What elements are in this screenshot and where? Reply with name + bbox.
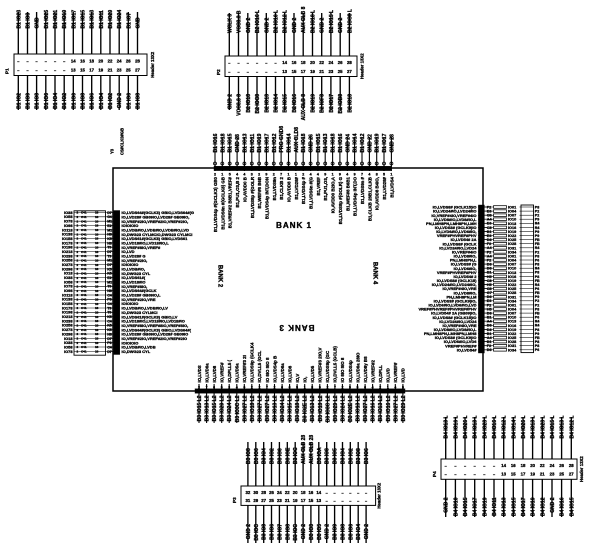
svg-text:B3 IO8: B3 IO8 xyxy=(285,524,291,540)
svg-text:–: – xyxy=(464,464,466,468)
svg-text:P3: P3 xyxy=(232,497,237,503)
svg-text:B1,LVDS8p #(GOLR: B1,LVDS8p #(GOLR xyxy=(250,176,255,218)
svg-text:13: 13 xyxy=(501,472,506,477)
svg-text:IO,LVD8: IO,LVD8 xyxy=(212,365,217,382)
svg-text:B4 IO28 L: B4 IO28 L xyxy=(540,415,546,438)
svg-text:B1 IO13: B1 IO13 xyxy=(242,133,248,152)
svg-text:14: 14 xyxy=(71,59,76,64)
svg-text:C41: C41 xyxy=(81,215,87,219)
svg-text:28: 28 xyxy=(261,490,266,495)
svg-text:B4 IO16 L: B4 IO16 L xyxy=(453,415,459,438)
svg-text:B3 IO13 L2: B3 IO13 L2 xyxy=(273,395,279,421)
svg-text:B4 IO16 L: B4 IO16 L xyxy=(492,415,498,438)
svg-text:–: – xyxy=(54,60,56,64)
svg-text:B4 IO19: B4 IO19 xyxy=(482,497,488,516)
svg-text:B1 IO11: B1 IO11 xyxy=(99,10,105,29)
svg-text:B4 IO28 L: B4 IO28 L xyxy=(482,415,488,438)
svg-text:B1 IO19: B1 IO19 xyxy=(62,10,68,29)
svg-text:D7: D7 xyxy=(107,350,112,354)
svg-text:B3 IO13 L2: B3 IO13 L2 xyxy=(310,395,316,421)
svg-text:Header 13X2: Header 13X2 xyxy=(150,51,155,77)
svg-text:C41: C41 xyxy=(81,345,87,349)
svg-text:–: – xyxy=(256,61,258,65)
svg-text:BANK 4: BANK 4 xyxy=(372,262,378,285)
svg-text:21: 21 xyxy=(108,68,113,73)
svg-text:B1,CLKB 28B1,CLKB: B1,CLKB 28B1,CLKB xyxy=(367,177,372,221)
svg-text:GND 2: GND 2 xyxy=(364,524,370,540)
svg-text:2: 2 xyxy=(274,385,276,389)
svg-text:B4 IO14 L: B4 IO14 L xyxy=(511,415,517,438)
svg-text:BANK 1: BANK 1 xyxy=(276,221,312,230)
svg-text:C41: C41 xyxy=(81,332,87,336)
svg-text:16: 16 xyxy=(511,463,516,468)
svg-text:2: 2 xyxy=(258,385,260,389)
svg-text:9: 9 xyxy=(319,385,321,389)
svg-text:B3 IO27 L2: B3 IO27 L2 xyxy=(265,395,271,421)
svg-text:–: – xyxy=(334,491,336,495)
svg-text:17: 17 xyxy=(301,69,306,74)
svg-text:5: 5 xyxy=(402,385,404,389)
svg-text:B3 IO6: B3 IO6 xyxy=(348,524,354,540)
svg-text:B1,PU1,O3,: B1,PU1,O3, xyxy=(323,177,328,201)
svg-text:GND 2: GND 2 xyxy=(227,94,233,110)
svg-text:9: 9 xyxy=(354,173,356,177)
svg-text:C41: C41 xyxy=(81,237,87,241)
svg-text:B4 IO12 L: B4 IO12 L xyxy=(569,415,575,438)
svg-text:B1 IO15: B1 IO15 xyxy=(81,10,87,29)
svg-text:14: 14 xyxy=(282,60,287,65)
svg-text:B1 IO19: B1 IO19 xyxy=(375,133,381,152)
svg-text:B4 IO17: B4 IO17 xyxy=(473,497,479,516)
svg-text:B1,LVD28#: B1,LVD28# xyxy=(294,176,299,199)
svg-text:2: 2 xyxy=(379,385,381,389)
svg-text:B3 IO24 L2: B3 IO24 L2 xyxy=(227,395,233,421)
svg-text:B1 IO14: B1 IO14 xyxy=(353,133,359,152)
svg-text:Header 13X2: Header 13X2 xyxy=(360,53,365,79)
svg-text:B3 IO27 L2: B3 IO27 L2 xyxy=(363,395,369,421)
svg-text:GND 2: GND 2 xyxy=(117,93,123,109)
svg-text:2: 2 xyxy=(251,385,253,389)
svg-text:E2: E2 xyxy=(107,224,111,228)
svg-text:C41: C41 xyxy=(81,258,87,262)
svg-text:GND 24: GND 24 xyxy=(345,134,351,153)
svg-text:B1 IO6: B1 IO6 xyxy=(44,93,50,109)
svg-text:14: 14 xyxy=(501,463,506,468)
svg-text:AUX CLB 28: AUX CLB 28 xyxy=(301,435,307,464)
svg-text:25: 25 xyxy=(269,498,274,503)
svg-text:B1 IO11: B1 IO11 xyxy=(250,134,256,153)
svg-text:IO,LVD5a: IO,LVD5a xyxy=(235,363,240,383)
svg-text:B1,CLKB 2: B1,CLKB 2 xyxy=(279,176,284,199)
svg-text:B1 IO19: B1 IO19 xyxy=(257,133,263,152)
svg-text:–: – xyxy=(274,61,276,65)
svg-text:B1 IO15: B1 IO15 xyxy=(228,133,234,152)
svg-text:1: 1 xyxy=(387,385,389,389)
svg-text:B1,PU1,O3,B 2: B1,PU1,O3,B 2 xyxy=(235,176,240,207)
svg-text:–: – xyxy=(349,499,351,503)
svg-text:25: 25 xyxy=(338,69,343,74)
svg-text:P4: P4 xyxy=(432,471,437,477)
svg-text:IO,AVDD8 B: IO,AVDD8 B xyxy=(287,177,292,202)
svg-text:B3 IO4: B3 IO4 xyxy=(262,448,268,464)
svg-text:22: 22 xyxy=(285,490,290,495)
svg-text:B1 IO0: B1 IO0 xyxy=(26,93,32,109)
svg-text:B1,LVDS4: B1,LVDS4 xyxy=(389,176,394,197)
svg-text:17: 17 xyxy=(89,68,94,73)
svg-text:20: 20 xyxy=(293,490,298,495)
svg-text:AUX CLB 8: AUX CLB 8 xyxy=(301,94,307,121)
svg-text:–: – xyxy=(341,491,343,495)
svg-text:B1 IO18: B1 IO18 xyxy=(220,133,226,152)
svg-text:B3 IO24 L2: B3 IO24 L2 xyxy=(280,395,286,421)
svg-text:B1,LVD28#: B1,LVD28# xyxy=(382,176,387,199)
svg-text:B3 IO13 L2: B3 IO13 L2 xyxy=(205,395,211,421)
svg-text:23: 23 xyxy=(329,69,334,74)
svg-text:B3 IO2: B3 IO2 xyxy=(348,448,354,464)
svg-text:B1 IO13: B1 IO13 xyxy=(90,10,96,29)
svg-text:–: – xyxy=(63,69,65,73)
svg-text:B3 IOA: B3 IOA xyxy=(317,447,323,464)
svg-text:6: 6 xyxy=(281,385,283,389)
svg-text:–: – xyxy=(26,69,28,73)
svg-text:M1: M1 xyxy=(107,259,112,263)
svg-text:9: 9 xyxy=(324,173,326,177)
svg-text:B1 IO3: B1 IO3 xyxy=(26,12,32,28)
svg-text:P6: P6 xyxy=(535,348,539,352)
svg-text:26: 26 xyxy=(269,490,274,495)
svg-text:K5: K5 xyxy=(107,267,112,271)
svg-text:15: 15 xyxy=(511,472,516,477)
svg-text:4: 4 xyxy=(346,173,348,177)
svg-text:21: 21 xyxy=(540,472,545,477)
svg-text:18: 18 xyxy=(301,490,306,495)
svg-text:18: 18 xyxy=(95,311,99,315)
svg-text:B3 IO18 L2: B3 IO18 L2 xyxy=(295,395,301,421)
svg-text:IO,LVD: IO,LVD xyxy=(401,368,406,382)
svg-text:B3 IOC: B3 IOC xyxy=(293,447,299,464)
svg-text:B3 IO8: B3 IO8 xyxy=(341,524,347,540)
svg-text:2: 2 xyxy=(302,173,304,177)
svg-text:B4 IO15 L: B4 IO15 L xyxy=(550,415,556,438)
svg-text:B3 IO6: B3 IO6 xyxy=(254,448,260,464)
svg-text:B1 IO12: B1 IO12 xyxy=(360,133,366,152)
svg-text:B4 IO12 L: B4 IO12 L xyxy=(502,415,508,438)
svg-text:B2 IOF8: B2 IOF8 xyxy=(320,94,326,113)
svg-text:26: 26 xyxy=(126,59,131,64)
svg-text:4: 4 xyxy=(372,385,374,389)
svg-text:B1 IO13: B1 IO13 xyxy=(323,133,329,152)
svg-text:GND 2: GND 2 xyxy=(292,18,298,34)
svg-text:B1 IO8: B1 IO8 xyxy=(81,93,87,109)
svg-text:B4 IO15: B4 IO15 xyxy=(511,497,517,516)
svg-text:VCC3.3 B: VCC3.3 B xyxy=(237,10,243,33)
svg-text:B1 IO16: B1 IO16 xyxy=(213,133,219,152)
svg-text:18: 18 xyxy=(95,267,99,271)
svg-text:GND 2: GND 2 xyxy=(338,18,344,34)
svg-text:B4 IO19: B4 IO19 xyxy=(531,497,537,516)
svg-text:B3 IO3: B3 IO3 xyxy=(309,524,315,540)
svg-text:B4 IO26 L: B4 IO26 L xyxy=(463,415,469,438)
svg-text:18: 18 xyxy=(95,302,99,306)
svg-text:B3 IO16 L2: B3 IO16 L2 xyxy=(386,395,392,421)
svg-text:B4 IO15: B4 IO15 xyxy=(463,497,469,516)
svg-text:20: 20 xyxy=(98,59,103,64)
svg-text:–: – xyxy=(326,499,328,503)
svg-text:18: 18 xyxy=(95,237,99,241)
svg-text:C41: C41 xyxy=(81,350,87,354)
svg-text:4: 4 xyxy=(236,173,238,177)
svg-text:T9: T9 xyxy=(107,311,111,315)
svg-text:13: 13 xyxy=(71,68,76,73)
svg-text:B3 IO5: B3 IO5 xyxy=(333,448,339,464)
svg-text:23: 23 xyxy=(550,472,555,477)
svg-text:4: 4 xyxy=(310,173,312,177)
svg-text:B1 IO16: B1 IO16 xyxy=(338,133,344,152)
svg-text:VCC3.3 8: VCC3.3 8 xyxy=(237,94,243,116)
svg-text:B1 IO2: B1 IO2 xyxy=(62,93,68,109)
svg-text:–: – xyxy=(17,60,19,64)
svg-text:20: 20 xyxy=(310,60,315,65)
svg-text:B3 IO4: B3 IO4 xyxy=(356,524,362,540)
svg-text:18: 18 xyxy=(95,224,99,228)
svg-text:B3 IO9: B3 IO9 xyxy=(333,524,339,540)
svg-text:B1 IO17: B1 IO17 xyxy=(71,10,77,29)
svg-text:B3 IO6: B3 IO6 xyxy=(270,524,276,540)
svg-text:B3 IOE: B3 IOE xyxy=(285,447,291,464)
svg-text:B1,VREF#2 B8B1,VREF#: B1,VREF#2 B8B1,VREF# xyxy=(228,176,233,228)
svg-text:B3 IO8: B3 IO8 xyxy=(262,524,268,540)
svg-text:1: 1 xyxy=(288,173,290,177)
svg-text:–: – xyxy=(357,499,359,503)
svg-text:GND: GND xyxy=(136,17,142,29)
svg-text:C41: C41 xyxy=(81,289,87,293)
svg-text:4: 4 xyxy=(236,385,238,389)
svg-text:B2 IO16 L: B2 IO16 L xyxy=(255,10,261,33)
svg-text:–: – xyxy=(464,473,466,477)
svg-text:–: – xyxy=(228,61,230,65)
svg-text:15: 15 xyxy=(80,68,85,73)
svg-text:–: – xyxy=(493,473,495,477)
svg-text:B3 IO15 L2: B3 IO15 L2 xyxy=(197,395,203,421)
svg-text:B4 IO16: B4 IO16 xyxy=(560,497,566,516)
svg-text:B1 IO17: B1 IO17 xyxy=(382,133,388,152)
svg-text:28: 28 xyxy=(347,60,352,65)
svg-text:B4 IO12: B4 IO12 xyxy=(540,497,546,516)
svg-text:C4: C4 xyxy=(107,345,112,349)
svg-text:IO,AVDD8 B4IO,: IO,AVDD8 B4IO, xyxy=(375,177,380,210)
svg-text:GND 26: GND 26 xyxy=(309,134,315,153)
svg-text:6: 6 xyxy=(289,385,291,389)
svg-text:B4 IO10: B4 IO10 xyxy=(453,497,459,516)
svg-text:GND 28: GND 28 xyxy=(389,134,395,153)
svg-text:28: 28 xyxy=(135,59,140,64)
svg-text:B1 IO8: B1 IO8 xyxy=(136,93,142,109)
svg-text:B2 IOC8: B2 IOC8 xyxy=(255,94,261,114)
svg-text:7: 7 xyxy=(361,173,363,177)
svg-text:AUX CLB 28: AUX CLB 28 xyxy=(309,435,315,464)
svg-text:B1 IO2: B1 IO2 xyxy=(108,93,114,109)
svg-text:B1 IO23: B1 IO23 xyxy=(16,10,22,29)
svg-text:T9: T9 xyxy=(107,246,111,250)
svg-text:B3 IO27 L2: B3 IO27 L2 xyxy=(242,395,248,421)
svg-text:AUX CLB 8: AUX CLB 8 xyxy=(301,6,307,33)
svg-text:–: – xyxy=(265,70,267,74)
svg-text:–: – xyxy=(256,70,258,74)
svg-text:GND 2: GND 2 xyxy=(444,497,450,513)
svg-text:9: 9 xyxy=(339,173,341,177)
svg-text:B1 IO7: B1 IO7 xyxy=(126,12,132,28)
svg-text:B3 IO0: B3 IO0 xyxy=(277,448,283,464)
svg-text:M1: M1 xyxy=(107,280,112,284)
svg-text:IO 8IO 8IO 8: IO 8IO 8IO 8 xyxy=(265,357,270,382)
svg-text:B3 IO29 L2: B3 IO29 L2 xyxy=(333,395,339,421)
svg-text:17: 17 xyxy=(301,498,306,503)
svg-text:–: – xyxy=(54,69,56,73)
svg-text:IO,DPLL: IO,DPLL xyxy=(378,365,383,383)
svg-text:GND 28: GND 28 xyxy=(235,134,241,153)
svg-text:IO,LVD8y B8: IO,LVD8y B8 xyxy=(363,356,368,383)
svg-text:7: 7 xyxy=(334,385,336,389)
svg-text:18: 18 xyxy=(95,289,99,293)
svg-text:–: – xyxy=(357,491,359,495)
svg-text:B3 IO29 L2: B3 IO29 L2 xyxy=(220,395,226,421)
svg-text:3: 3 xyxy=(228,385,230,389)
svg-text:28: 28 xyxy=(569,463,574,468)
svg-text:IO,AVDD0 B: IO,AVDD0 B xyxy=(242,177,247,202)
svg-text:B4 IO17: B4 IO17 xyxy=(521,497,527,516)
svg-text:GND 2: GND 2 xyxy=(264,18,270,34)
svg-text:B2 IO16: B2 IO16 xyxy=(292,94,298,113)
svg-text:18: 18 xyxy=(95,345,99,349)
svg-text:IO,VREF#3 2IO,V: IO,VREF#3 2IO,V xyxy=(318,348,323,383)
svg-text:B1,LVDS4p INT,DON: B1,LVDS4p INT,DON xyxy=(264,177,269,219)
svg-text:B3 IO29 L2: B3 IO29 L2 xyxy=(401,395,407,421)
svg-text:B4 IO18 L: B4 IO18 L xyxy=(473,415,479,438)
svg-text:IO 8IO 8IO 8: IO 8IO 8IO 8 xyxy=(340,357,345,382)
svg-text:BANK 3: BANK 3 xyxy=(279,323,315,332)
svg-text:IO,DVLL5 (GCL: IO,DVLL5 (GCL xyxy=(257,350,262,382)
svg-text:22: 22 xyxy=(319,60,324,65)
svg-text:B3 IO8: B3 IO8 xyxy=(325,448,331,464)
svg-text:7: 7 xyxy=(266,385,268,389)
svg-text:C4: C4 xyxy=(107,302,112,306)
svg-text:IO,LVDS4p B: IO,LVDS4p B xyxy=(272,356,277,383)
svg-text:P2: P2 xyxy=(216,69,221,75)
svg-text:B4 IO26 L: B4 IO26 L xyxy=(521,415,527,438)
svg-text:21: 21 xyxy=(285,498,290,503)
svg-text:–: – xyxy=(237,70,239,74)
svg-text:IO78: IO78 xyxy=(64,349,73,354)
svg-text:18: 18 xyxy=(95,332,99,336)
svg-text:IO,LVD6a: IO,LVD6a xyxy=(280,363,285,383)
svg-text:B1 IO17: B1 IO17 xyxy=(264,133,270,152)
svg-text:14: 14 xyxy=(316,490,321,495)
svg-text:24: 24 xyxy=(117,59,122,64)
svg-text:IO,LVD5: IO,LVD5 xyxy=(310,365,315,382)
svg-text:27: 27 xyxy=(347,69,352,74)
svg-text:B4 IO13 L: B4 IO13 L xyxy=(560,415,566,438)
svg-text:B3 IO6: B3 IO6 xyxy=(364,448,370,464)
svg-text:IO,DWG23 CYL: IO,DWG23 CYL xyxy=(122,349,151,354)
svg-text:B3 IO15 L2: B3 IO15 L2 xyxy=(288,395,294,421)
svg-text:K5: K5 xyxy=(107,237,112,241)
svg-text:4: 4 xyxy=(368,173,370,177)
svg-text:B3 IO2E L2: B3 IO2E L2 xyxy=(348,395,354,422)
svg-text:B1 IO6: B1 IO6 xyxy=(126,93,132,109)
svg-text:24: 24 xyxy=(277,490,282,495)
svg-text:B4 IO18 L: B4 IO18 L xyxy=(444,415,450,438)
svg-text:–: – xyxy=(365,499,367,503)
svg-text:18: 18 xyxy=(95,245,99,249)
svg-text:15: 15 xyxy=(309,498,314,503)
svg-text:–: – xyxy=(483,473,485,477)
svg-text:18: 18 xyxy=(521,463,526,468)
svg-text:B1 IO25: B1 IO25 xyxy=(44,10,50,29)
svg-text:8: 8 xyxy=(311,385,313,389)
svg-text:19: 19 xyxy=(293,498,298,503)
svg-text:B1 IO4: B1 IO4 xyxy=(99,93,105,109)
svg-text:B1 IO15: B1 IO15 xyxy=(316,133,322,152)
svg-text:C41: C41 xyxy=(81,245,87,249)
svg-text:25: 25 xyxy=(559,472,564,477)
svg-text:B1,WEF#8 B6B: B1,WEF#8 B6B xyxy=(257,177,262,208)
svg-text:15: 15 xyxy=(292,69,297,74)
svg-text:27: 27 xyxy=(135,68,140,73)
svg-text:16: 16 xyxy=(309,490,314,495)
svg-text:B3 IO15 L2: B3 IO15 L2 xyxy=(212,395,218,421)
svg-text:B3 IO2E L2: B3 IO2E L2 xyxy=(303,395,309,422)
svg-text:–: – xyxy=(341,499,343,503)
svg-text:–: – xyxy=(365,491,367,495)
svg-text:7: 7 xyxy=(280,173,282,177)
svg-text:B3 IO5: B3 IO5 xyxy=(317,524,323,540)
svg-text:B2 IOC8 L: B2 IOC8 L xyxy=(347,9,353,33)
svg-text:C4: C4 xyxy=(107,215,112,219)
svg-text:B1 IO14: B1 IO14 xyxy=(287,133,293,152)
svg-text:29: 29 xyxy=(253,498,258,503)
svg-text:25: 25 xyxy=(126,68,131,73)
svg-text:B1,LVDS6n #(G: B1,LVDS6n #(G xyxy=(309,176,314,208)
svg-text:GND 2: GND 2 xyxy=(550,497,556,513)
svg-text:–: – xyxy=(228,70,230,74)
svg-text:20: 20 xyxy=(530,463,535,468)
svg-text:B1 IO6: B1 IO6 xyxy=(90,93,96,109)
svg-text:22: 22 xyxy=(108,59,113,64)
svg-text:IO,LVD8: IO,LVD8 xyxy=(287,365,292,382)
svg-text:IO,: IO, xyxy=(303,377,308,383)
svg-text:C41: C41 xyxy=(81,324,87,328)
svg-text:–: – xyxy=(247,70,249,74)
svg-text:B3 IO24 L2: B3 IO24 L2 xyxy=(340,395,346,421)
svg-text:B2 IO17: B2 IO17 xyxy=(329,94,335,113)
svg-text:GND: GND xyxy=(35,17,41,29)
svg-text:B3 IO18 L2: B3 IO18 L2 xyxy=(250,395,256,421)
svg-text:B3 IO16 L2: B3 IO16 L2 xyxy=(371,395,377,421)
svg-text:B1 IO24: B1 IO24 xyxy=(117,10,123,29)
svg-text:CS#CLK0#GB: CS#CLK0#GB xyxy=(120,128,125,155)
svg-text:IO,VREF#3 2I: IO,VREF#3 2I xyxy=(242,355,247,382)
svg-text:IO,DPLL5 (: IO,DPLL5 ( xyxy=(227,360,232,383)
svg-text:–: – xyxy=(36,69,38,73)
svg-text:–: – xyxy=(474,473,476,477)
svg-text:B2 IO18: B2 IO18 xyxy=(347,94,353,113)
svg-text:24: 24 xyxy=(329,60,334,65)
svg-text:IO,VREF#: IO,VREF# xyxy=(220,362,225,383)
svg-text:B3 IO7: B3 IO7 xyxy=(277,524,283,540)
svg-text:–: – xyxy=(17,69,19,73)
svg-text:B1,LVDS4p #(GCLK3) GB0: B1,LVDS4p #(GCLK3) GB0 xyxy=(213,176,218,232)
svg-text:16: 16 xyxy=(292,60,297,65)
